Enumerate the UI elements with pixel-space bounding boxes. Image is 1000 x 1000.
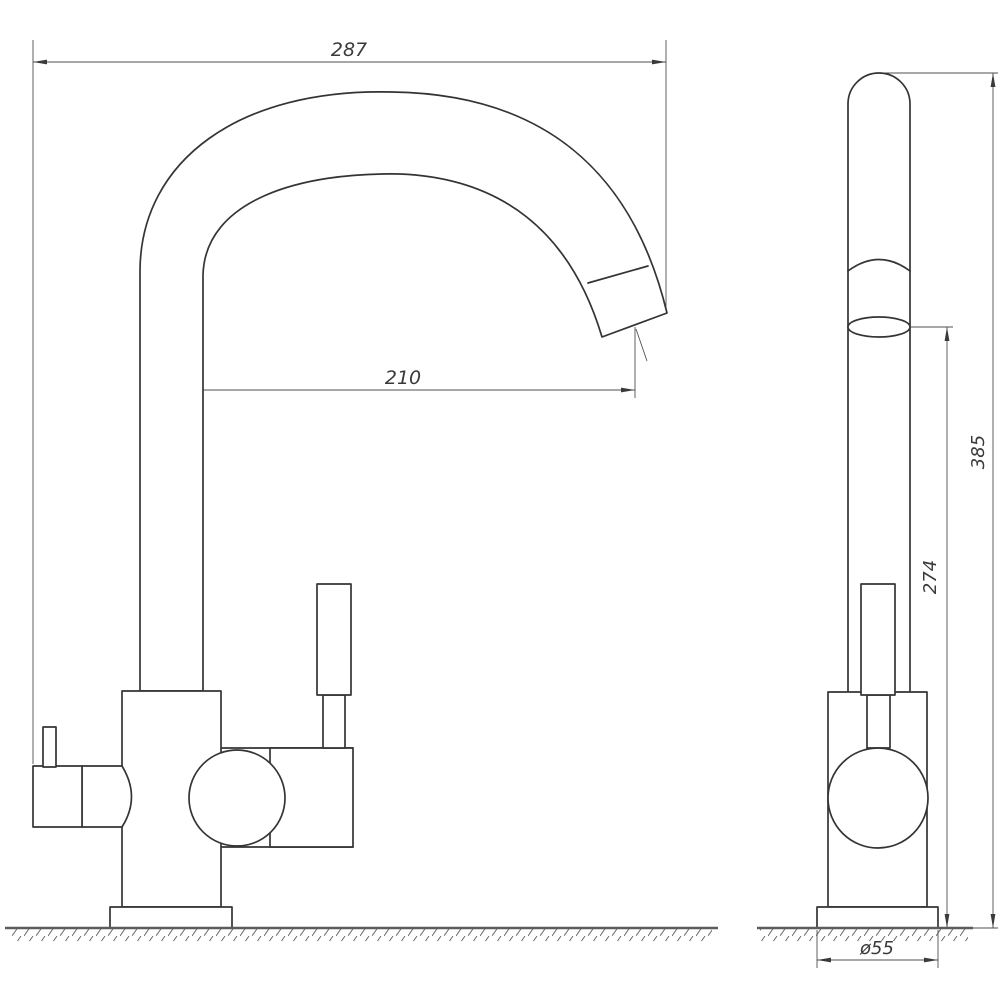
dimension-label-287: 287 — [331, 39, 367, 61]
lever-ball-joint-side — [828, 748, 928, 848]
arrowhead-top — [945, 327, 950, 341]
swivel-joint-ellipse — [848, 317, 910, 337]
arrowhead-top — [991, 73, 996, 87]
side-valve-body — [33, 766, 82, 827]
side-view — [757, 73, 973, 941]
drawing-page: 287 210 — [0, 0, 1000, 1000]
side-valve-knob — [43, 727, 56, 767]
arrowhead-left — [817, 958, 831, 963]
dimension-label-385: 385 — [968, 435, 989, 469]
lever-stem — [323, 695, 345, 748]
lever-stem-side — [867, 695, 890, 748]
mounting-base — [110, 907, 232, 928]
arrowhead-left — [33, 60, 47, 65]
arrowhead-bottom — [945, 914, 950, 928]
side-valve-neck — [82, 766, 132, 827]
arrowhead-right — [652, 60, 666, 65]
lever-grip — [317, 584, 351, 695]
lever-ball-joint — [189, 750, 285, 846]
tip-leader-line — [636, 329, 647, 361]
arrowhead-right — [621, 388, 635, 393]
dimension-label-base-diameter: ø55 — [859, 938, 894, 959]
spout-tube — [140, 92, 667, 691]
arrowhead-right — [924, 958, 938, 963]
front-view — [5, 92, 718, 941]
dimension-210: 210 — [171, 327, 647, 398]
mounting-base-side — [817, 907, 938, 928]
lever-grip-side — [861, 584, 895, 695]
dimension-label-274: 274 — [920, 560, 941, 594]
arrowhead-bottom — [991, 914, 996, 928]
dimension-label-210: 210 — [385, 367, 421, 389]
faucet-technical-drawing: 287 210 — [0, 0, 1000, 1000]
ground-hatching — [10, 929, 712, 941]
